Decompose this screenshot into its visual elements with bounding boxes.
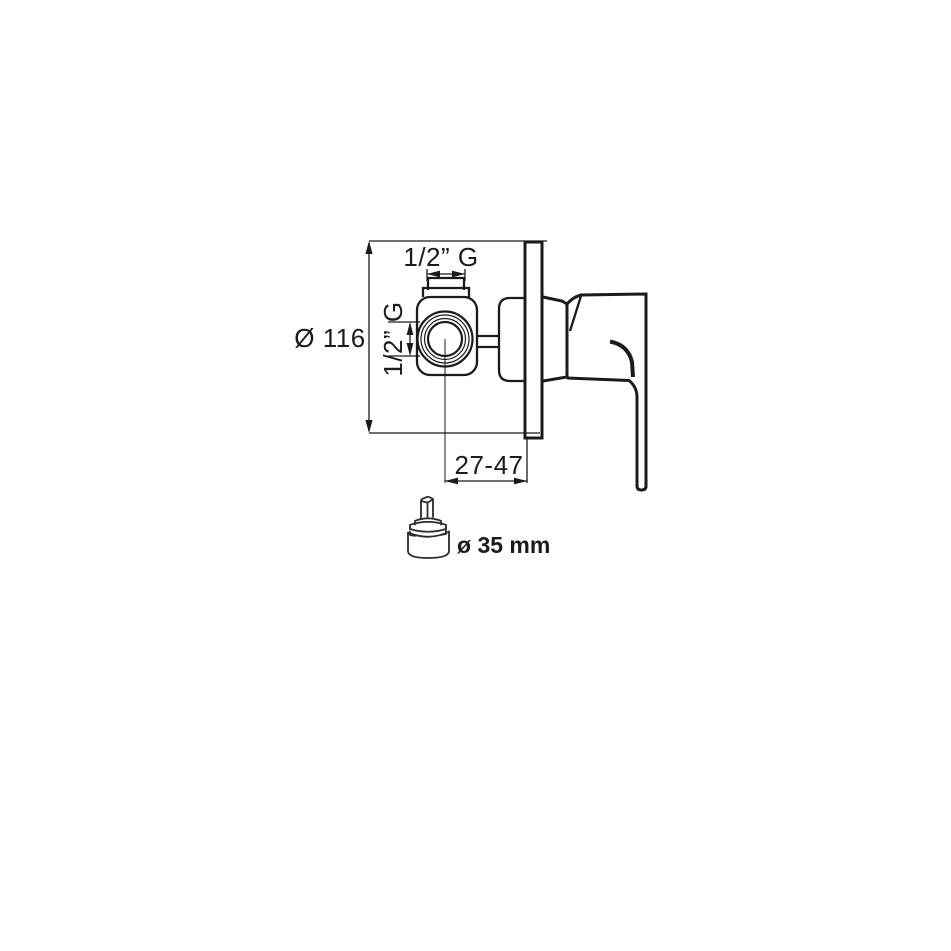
arrowhead-down	[365, 420, 372, 433]
handle-curve-detail	[610, 342, 633, 378]
label-top-port: 1/2” G	[403, 242, 478, 272]
cartridge-drawing	[408, 497, 449, 558]
cartridge-notch-right	[441, 531, 446, 535]
arrowhead-up	[365, 241, 372, 254]
top-port-flange	[423, 288, 469, 297]
label-depth-range: 27-47	[455, 450, 524, 480]
handle-base-cap	[543, 297, 567, 381]
valve-body	[417, 278, 525, 381]
label-side-port: 1/2” G	[378, 301, 408, 376]
escutcheon-plate	[525, 242, 542, 438]
drawing-page: Ø 116 1/2” G 1/2” G 27-47	[0, 0, 951, 951]
valve-rear-block	[499, 298, 525, 381]
handle	[543, 294, 646, 490]
cartridge-collar-rim	[410, 529, 446, 532]
label-cartridge-diameter: ø 35 mm	[457, 532, 550, 558]
technical-drawing: Ø 116 1/2” G 1/2” G 27-47	[0, 0, 951, 951]
handle-lever	[567, 294, 646, 490]
label-plate-diameter: Ø 116	[294, 323, 365, 353]
cartridge-collar-lower	[410, 522, 446, 529]
